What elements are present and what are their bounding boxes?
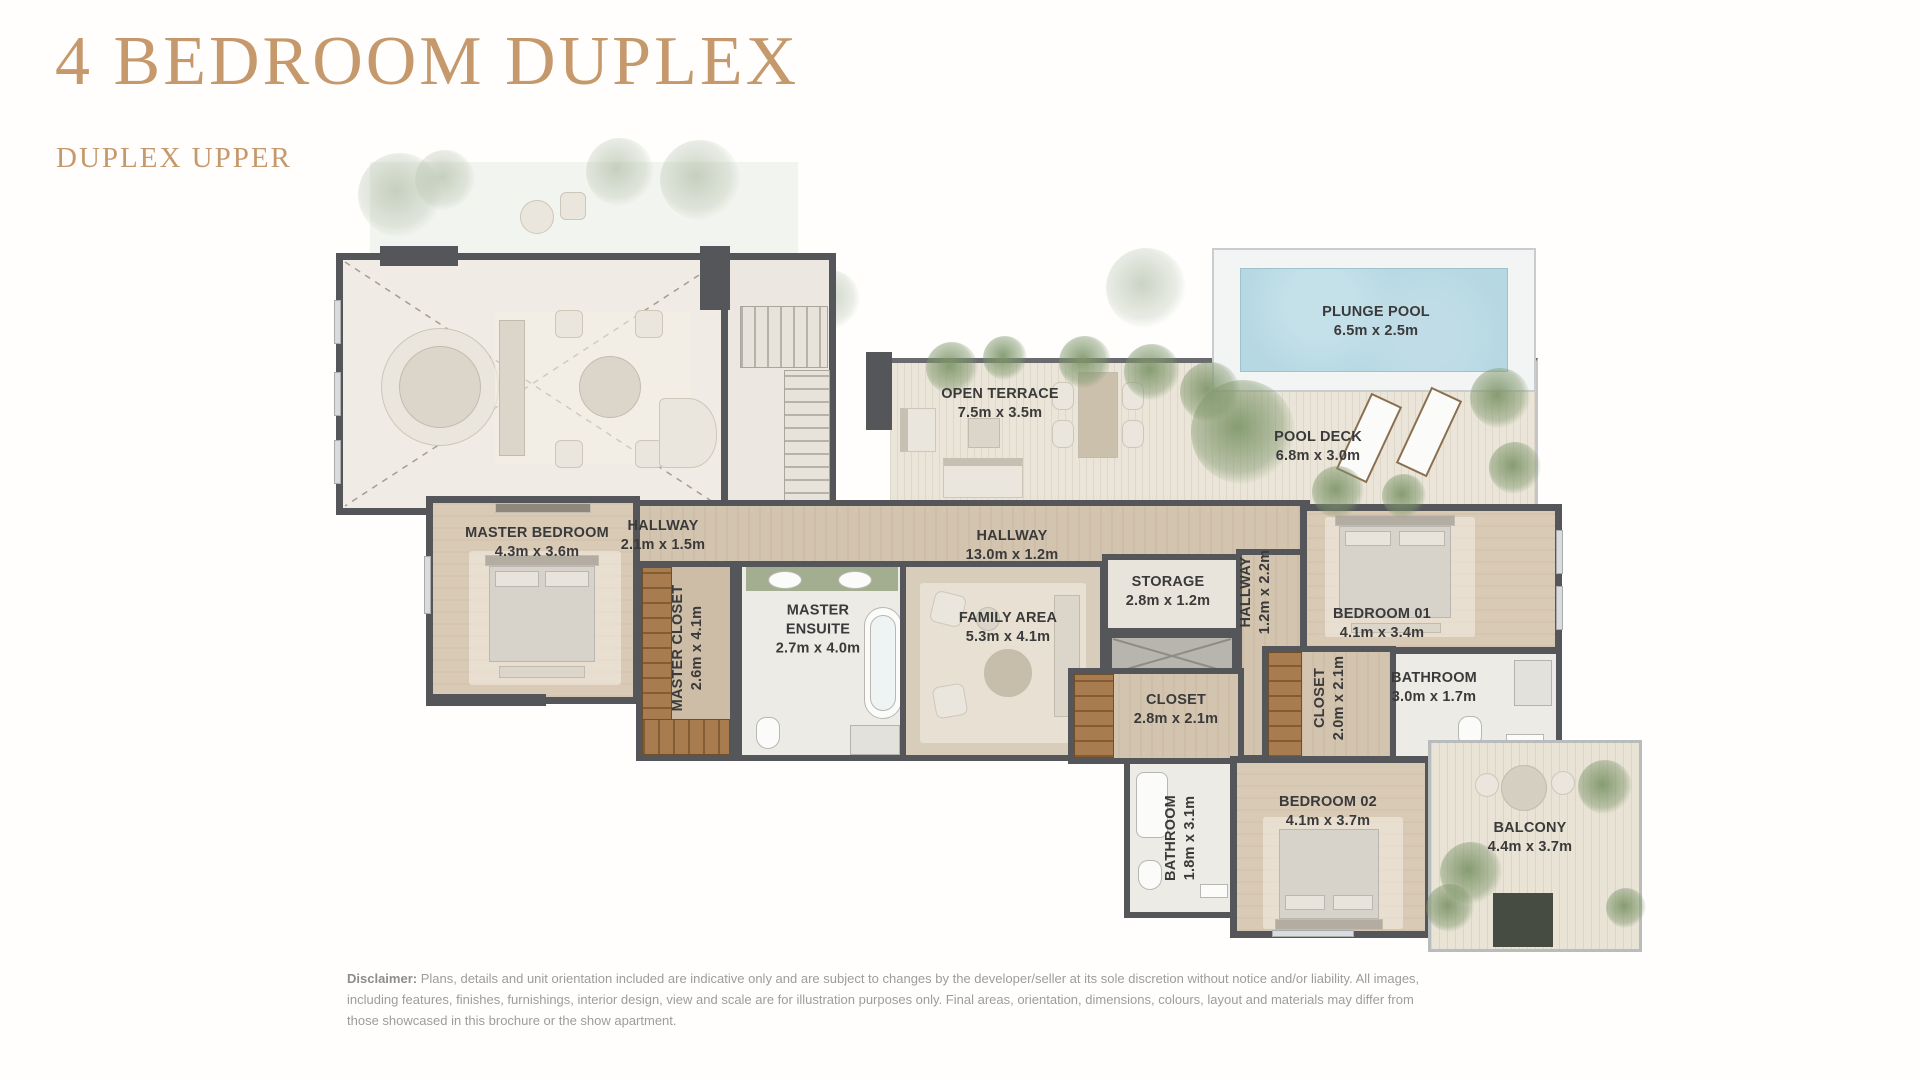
bed-pillow [1399, 531, 1445, 546]
tree [1059, 336, 1111, 388]
tree [415, 150, 475, 210]
wardrobe [1268, 652, 1302, 758]
grand-piano [659, 398, 717, 468]
room-label-bathroom-02: BATHROOM 1.8m x 3.1m [1162, 795, 1200, 881]
tree [1106, 248, 1186, 328]
room-label-pool-deck: POOL DECK 6.8m x 3.0m [1274, 428, 1362, 466]
armchair [555, 310, 583, 338]
room-label-master-ensuite: MASTER ENSUITE 2.7m x 4.0m [770, 601, 866, 658]
room-label-hallway-side: HALLWAY 1.2m x 2.2m [1237, 550, 1275, 634]
room-master-ensuite [736, 561, 908, 761]
sink [838, 571, 872, 589]
coffee-table-round [984, 649, 1032, 697]
room-label-bedroom-02: BEDROOM 02 4.1m x 3.7m [1279, 793, 1377, 831]
room-bedroom-02 [1230, 756, 1432, 938]
tree [983, 336, 1027, 380]
dresser [495, 503, 591, 513]
bathtub-basin [870, 615, 896, 711]
wall-segment [426, 694, 546, 706]
stair-hall [721, 253, 836, 515]
outdoor-armchair [900, 408, 936, 452]
wall-segment [866, 352, 892, 430]
room-label-master-closet: MASTER CLOSET 2.6m x 4.1m [669, 585, 707, 712]
window [1272, 930, 1354, 937]
tree [660, 140, 740, 220]
window [334, 440, 341, 484]
room-label-closet-b: CLOSET 2.0m x 2.1m [1311, 656, 1349, 740]
room-label-bathroom-01: BATHROOM 3.0m x 1.7m [1391, 669, 1477, 707]
window [1556, 530, 1563, 574]
bed-pillow [495, 571, 539, 587]
stairs-lower-flight [784, 370, 830, 508]
room-label-closet-a: CLOSET 2.8m x 2.1m [1134, 691, 1218, 729]
window [1556, 586, 1563, 630]
window [424, 556, 431, 614]
shower [1514, 660, 1552, 706]
page-subtitle: DUPLEX UPPER [56, 142, 292, 175]
bed-pillow [1333, 895, 1373, 910]
room-label-master-bedroom: MASTER BEDROOM 4.3m x 3.6m [465, 524, 609, 562]
outdoor-sofa [943, 458, 1023, 498]
sofa [499, 320, 525, 456]
room-label-family-area: FAMILY AREA 5.3m x 4.1m [959, 609, 1057, 647]
tree [1489, 442, 1541, 494]
tree [1606, 888, 1646, 928]
window [334, 300, 341, 344]
tree [1426, 884, 1474, 932]
room-label-storage: STORAGE 2.8m x 1.2m [1126, 573, 1210, 611]
tree [1578, 760, 1632, 814]
window [334, 372, 341, 416]
toilet [756, 717, 780, 749]
room-label-open-terrace: OPEN TERRACE 7.5m x 3.5m [941, 385, 1059, 423]
wardrobe [642, 719, 730, 755]
sink [1200, 884, 1228, 898]
brochure-page: 4 BEDROOM DUPLEX DUPLEX UPPER [0, 0, 1920, 1080]
page-title: 4 BEDROOM DUPLEX [55, 22, 799, 102]
planter-box [1493, 893, 1553, 947]
garden-side-table [560, 192, 586, 220]
armchair [931, 682, 968, 719]
stairs-upper-flight [740, 306, 828, 368]
room-label-hallway-upper: HALLWAY 2.1m x 1.5m [621, 517, 705, 555]
toilet [1138, 860, 1162, 890]
armchair [635, 310, 663, 338]
tree [1470, 368, 1530, 428]
armchair [555, 440, 583, 468]
tree [586, 138, 654, 206]
disclaimer: Disclaimer: Plans, details and unit orie… [347, 968, 1422, 1031]
outdoor-chair [1551, 771, 1575, 795]
bed-pillow [1345, 531, 1391, 546]
disclaimer-label: Disclaimer: [347, 971, 417, 986]
sink [768, 571, 802, 589]
bed-headboard [1335, 515, 1455, 526]
outdoor-chair [1052, 420, 1074, 448]
tree [1312, 466, 1364, 518]
room-label-plunge-pool: PLUNGE POOL 6.5m x 2.5m [1322, 303, 1430, 341]
outdoor-chair [1122, 420, 1144, 448]
coffee-table-round [579, 356, 641, 418]
bed-bench [499, 666, 585, 678]
dining-table-top [399, 346, 481, 428]
disclaimer-text: Plans, details and unit orientation incl… [347, 971, 1419, 1028]
tree [1124, 344, 1180, 400]
room-label-bedroom-01: BEDROOM 01 4.1m x 3.4m [1333, 605, 1431, 643]
outdoor-chair [1475, 773, 1499, 797]
garden-lounge-chairs [520, 200, 554, 234]
shower [850, 725, 900, 755]
wall-segment [380, 246, 458, 266]
bistro-table-round [1501, 765, 1547, 811]
tree [1382, 474, 1426, 518]
room-living-void [336, 253, 728, 515]
bed-headboard [1275, 919, 1383, 930]
wall-segment [700, 246, 730, 310]
bed-pillow [1285, 895, 1325, 910]
wardrobe [1074, 674, 1114, 758]
room-label-hallway-main: HALLWAY 13.0m x 1.2m [966, 527, 1059, 565]
bed-pillow [545, 571, 589, 587]
room-label-balcony: BALCONY 4.4m x 3.7m [1488, 819, 1572, 857]
